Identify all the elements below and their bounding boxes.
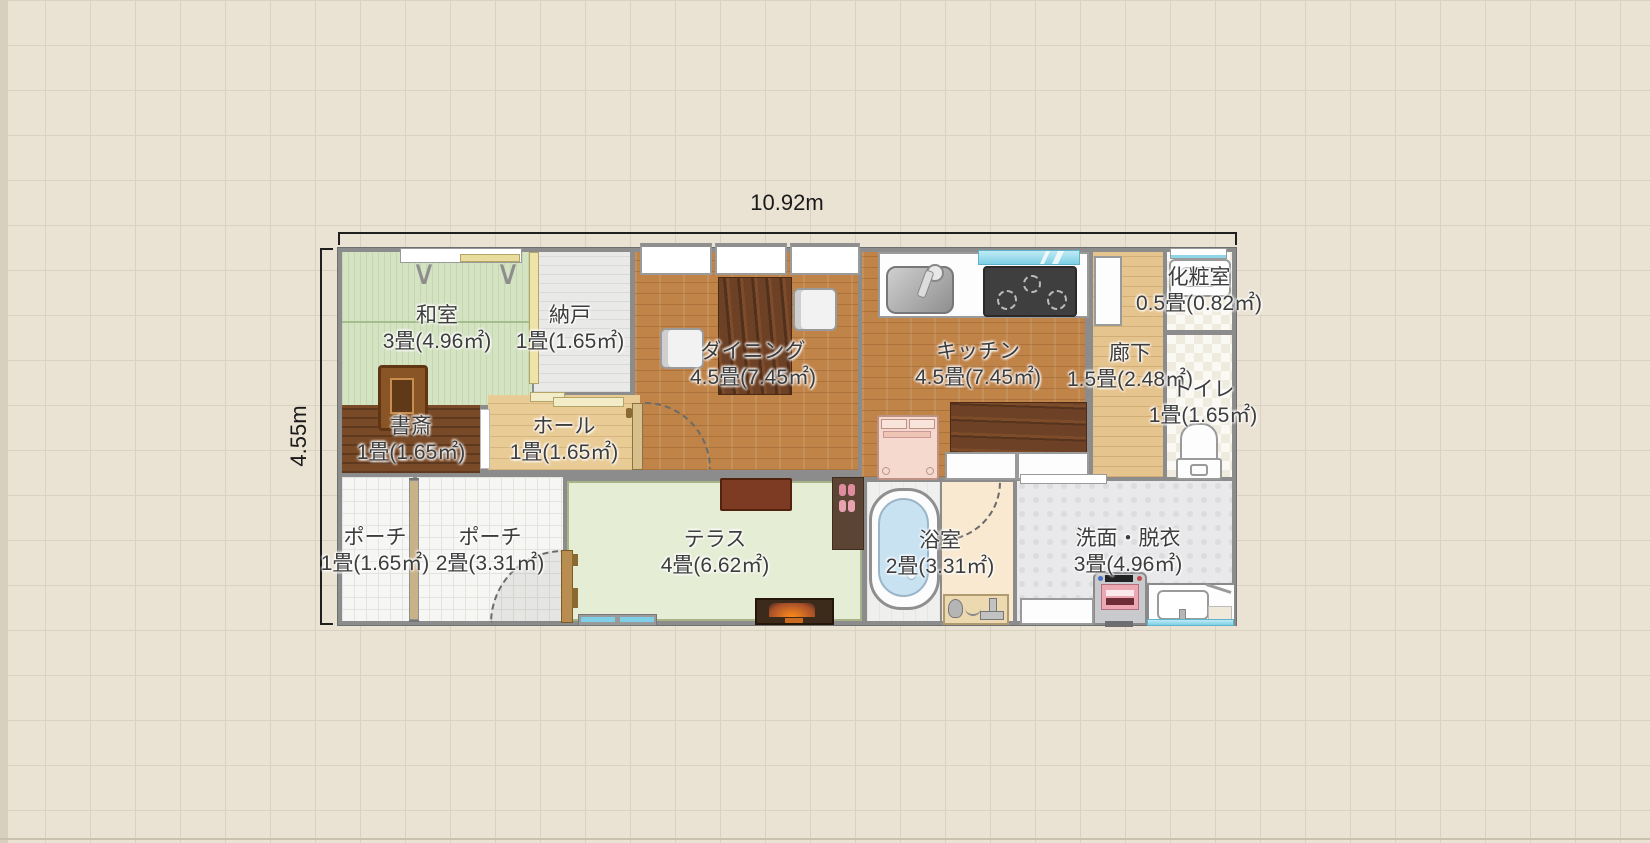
room-name: トイレ: [1149, 377, 1258, 403]
shosai-hall-door[interactable]: [480, 409, 490, 469]
hanger-icon: ∨: [402, 256, 446, 290]
width-dimension-label: 10.92m: [750, 190, 823, 216]
room-label-senmen: 洗面・脱衣 3畳(4.96㎡): [1074, 526, 1183, 578]
terrace-window[interactable]: [578, 614, 657, 626]
room-name: 書斎: [357, 414, 466, 440]
kitchen-sink[interactable]: [886, 266, 954, 314]
building: ∨ ∨: [338, 248, 1236, 625]
room-label-kitchen: キッチン 4.5畳(7.45㎡): [915, 339, 1041, 391]
senmen-cabinet[interactable]: [1020, 598, 1094, 625]
room-name: ポーチ: [321, 525, 430, 551]
room-area: 4.5畳(7.45㎡): [690, 365, 816, 391]
terrace-stove[interactable]: [755, 598, 834, 625]
room-area: 2畳(3.31㎡): [436, 551, 545, 577]
terrace-bench[interactable]: [720, 478, 792, 511]
room-name: 洗面・脱衣: [1074, 526, 1183, 552]
entrance-door-hinge: [572, 554, 578, 566]
height-dimension-label: 4.55m: [286, 405, 312, 466]
slippers-icon: [839, 500, 855, 512]
room-area: 4.5畳(7.45㎡): [915, 365, 1041, 391]
room-label-bath: 浴室 2畳(3.31㎡): [886, 528, 995, 580]
dining-window[interactable]: [715, 243, 787, 275]
kitchen-lower-cabinet[interactable]: [945, 452, 1017, 480]
dining-chair[interactable]: [793, 288, 837, 331]
room-name: 化粧室: [1136, 265, 1262, 291]
room-area: 1畳(1.65㎡): [510, 440, 619, 466]
room-area: 1畳(1.65㎡): [516, 329, 625, 355]
dining-window[interactable]: [640, 243, 712, 275]
room-label-porch1: ポーチ 1畳(1.65㎡): [321, 525, 430, 577]
canvas-left-edge: [0, 0, 8, 843]
room-area: 3畳(4.96㎡): [1074, 552, 1183, 578]
door-handle: [626, 408, 632, 418]
toilet-tank[interactable]: [1176, 458, 1222, 480]
washing-machine[interactable]: [1093, 572, 1147, 625]
hall-top-window[interactable]: [553, 397, 624, 407]
room-label-dining: ダイニング 4.5畳(7.45㎡): [690, 339, 816, 391]
room-name: 廊下: [1067, 341, 1193, 367]
room-name: テラス: [661, 527, 770, 553]
hanger-icon: ∨: [486, 256, 530, 290]
senmen-top-window[interactable]: [1020, 474, 1107, 484]
hall-dining-door[interactable]: [632, 403, 643, 470]
room-label-shosai: 書斎 1畳(1.65㎡): [357, 414, 466, 466]
room-label-hall: ホール 1畳(1.65㎡): [510, 414, 619, 466]
entrance-door-hinge: [572, 588, 578, 608]
room-area: 1畳(1.65㎡): [321, 551, 430, 577]
room-label-nando: 納戸 1畳(1.65㎡): [516, 303, 625, 355]
width-dimension-tick-left: [338, 232, 340, 245]
room-name: ダイニング: [690, 339, 816, 365]
room-name: 納戸: [516, 303, 625, 329]
room-name: 浴室: [886, 528, 995, 554]
floorplan-canvas: { "plan": { "dimensions": { "width_label…: [0, 0, 1650, 843]
shower-unit[interactable]: [943, 594, 1009, 625]
room-name: キッチン: [915, 339, 1041, 365]
slippers-icon: [839, 484, 855, 496]
room-area: 0.5畳(0.82㎡): [1136, 291, 1262, 317]
height-dimension-tick-bottom: [320, 623, 333, 625]
room-name: ホール: [510, 414, 619, 440]
room-label-kesho: 化粧室 0.5畳(0.82㎡): [1136, 265, 1262, 317]
dining-window[interactable]: [790, 243, 860, 275]
kesho-window[interactable]: [1170, 248, 1227, 259]
kitchen-mat[interactable]: [950, 402, 1087, 454]
room-area: 1畳(1.65㎡): [1149, 403, 1258, 429]
room-area: 1畳(1.65㎡): [357, 440, 466, 466]
room-area: 3畳(4.96㎡): [383, 329, 492, 355]
width-dimension-line: [338, 232, 1237, 234]
room-label-porch2: ポーチ 2畳(3.31㎡): [436, 525, 545, 577]
senmen-bottom-window: [1147, 619, 1234, 626]
height-dimension-tick-top: [320, 248, 333, 250]
room-area: 4畳(6.62㎡): [661, 553, 770, 579]
refrigerator[interactable]: [877, 415, 939, 480]
corridor-cabinet[interactable]: [1094, 256, 1122, 326]
width-dimension-tick-right: [1235, 232, 1237, 245]
room-label-terrace: テラス 4畳(6.62㎡): [661, 527, 770, 579]
canvas-bottom-edge: [0, 838, 1650, 840]
room-label-washitsu: 和室 3畳(4.96㎡): [383, 303, 492, 355]
kitchen-backsplash: [978, 250, 1080, 265]
kitchen-stove[interactable]: [983, 266, 1077, 317]
room-name: 和室: [383, 303, 492, 329]
room-label-toilet: トイレ 1畳(1.65㎡): [1149, 377, 1258, 429]
room-area: 2畳(3.31㎡): [886, 554, 995, 580]
room-name: ポーチ: [436, 525, 545, 551]
